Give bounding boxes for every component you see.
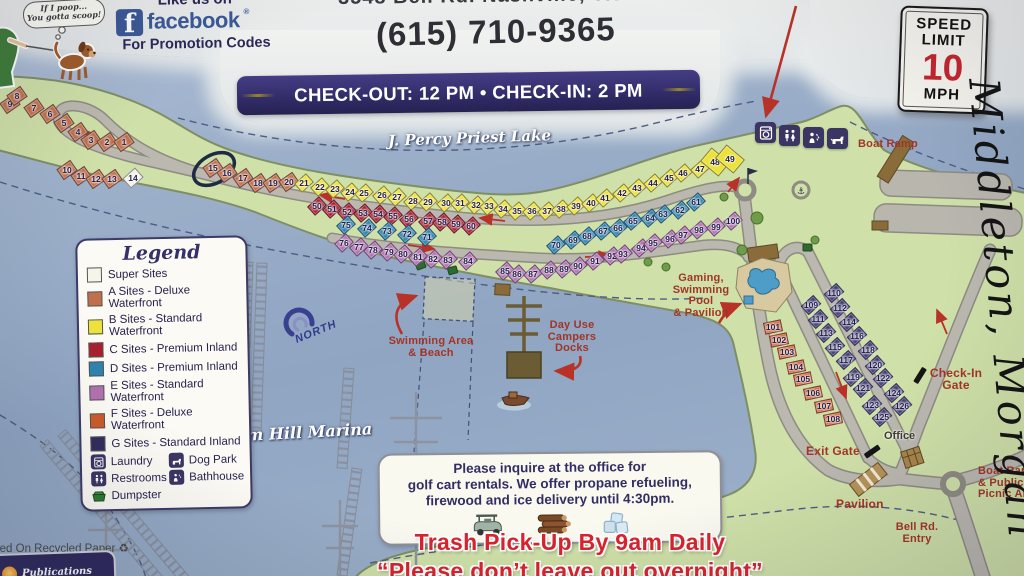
shed-building	[495, 284, 511, 296]
swatch-b	[88, 319, 103, 334]
boat-ramp-label: Boat Ramp	[858, 139, 918, 151]
laundry-pointer-arrow	[766, 6, 796, 116]
trash-overnight-notice: “Please don’t leave out overnight”	[310, 558, 830, 576]
facebook-promo: Like us on f facebook ® For Promotion Co…	[115, 0, 270, 53]
office-label: Office	[884, 430, 915, 442]
thought-dot	[56, 35, 60, 39]
laundry-icon	[91, 454, 106, 469]
swatch-c	[88, 342, 103, 357]
sun-icon	[2, 566, 18, 576]
facebook-brand: facebook	[147, 7, 240, 35]
legend-row-a: A Sites - Deluxe Waterfront	[78, 281, 247, 313]
svg-text:⚓: ⚓	[797, 187, 805, 197]
swatch-super	[87, 267, 102, 282]
boat-illustration	[497, 392, 531, 411]
swatch-e	[89, 385, 104, 400]
swatch-a	[87, 291, 102, 306]
dog-thought-bubble: If I poop... You gotta scoop!	[22, 0, 105, 29]
dumpster-icon	[91, 488, 106, 503]
swimming-area-arrow	[396, 296, 416, 334]
promo-codes-text: For Promotion Codes	[122, 35, 270, 54]
check-times-banner: CHECK-OUT: 12 PM • CHECK-IN: 2 PM	[237, 70, 700, 115]
swatch-g	[90, 436, 105, 451]
bell-rd-entry-label: Bell Rd. Entry	[882, 522, 952, 545]
dog-park-icon	[169, 453, 184, 468]
legend-row-e: E Sites - Standard Waterfront	[80, 375, 249, 407]
legend-row-f: F Sites - Deluxe Waterfront	[81, 403, 250, 435]
day-use-arrow	[556, 356, 581, 371]
legend-dumpster: Dumpster	[91, 487, 169, 504]
dog-park-icon	[827, 128, 848, 149]
pavilion-label: Pavilion	[836, 499, 884, 511]
swatch-f	[90, 413, 105, 428]
gaming-pool-label: Gaming, Swimming Pool & Pavilion	[655, 273, 747, 319]
bathhouse-icon	[169, 470, 184, 485]
legend-bathhouse: Bathhouse	[169, 468, 247, 485]
legend-row-b: B Sites - Standard Waterfront	[79, 309, 248, 341]
campground-map-photo: ⚓	[0, 0, 1024, 576]
swatch-d	[89, 361, 104, 376]
publisher-logo: Publications	[0, 550, 117, 576]
bathhouse-icon	[803, 127, 824, 148]
check-in-gate-label: Check-In Gate	[920, 368, 992, 391]
trash-pickup-notice: Trash Pick-Up By 9am Daily	[310, 529, 830, 556]
facebook-icon: f	[116, 9, 143, 36]
phone-number: (615) 710-9365	[376, 10, 617, 54]
legend-dog-park: Dog Park	[169, 451, 247, 468]
legend-laundry: Laundry	[91, 453, 169, 470]
legend-box: Legend Super Sites A Sites - Deluxe Wate…	[75, 235, 253, 512]
thought-dot	[59, 27, 65, 33]
restrooms-icon	[91, 471, 106, 486]
legend-restrooms: Restrooms	[91, 470, 169, 487]
restrooms-icon	[779, 125, 800, 146]
exit-gate-label: Exit Gate	[806, 446, 860, 458]
day-use-label: Day Use Campers Docks	[537, 320, 607, 355]
swimming-beach-area	[414, 277, 475, 452]
laundry-icon	[755, 122, 776, 143]
swimming-area-label: Swimming Area & Beach	[378, 336, 484, 359]
